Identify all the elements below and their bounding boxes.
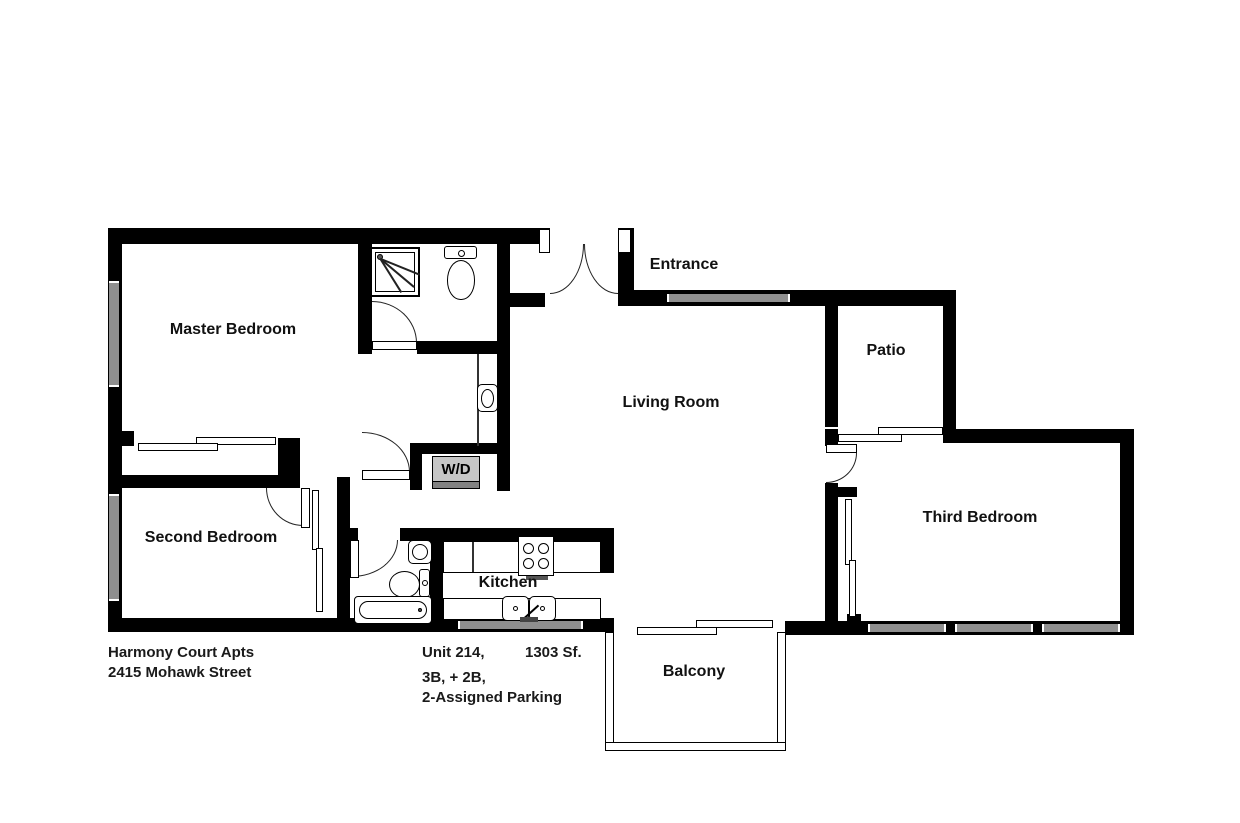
footer-building-name: Harmony Court Apts xyxy=(108,644,254,661)
toilet2-flush xyxy=(422,580,428,586)
bathroom1-door-swing xyxy=(372,301,417,343)
kitchen-sink-drain xyxy=(513,606,518,611)
wall-bedroom3-right xyxy=(1120,429,1134,635)
kitchen-sink-drain xyxy=(540,606,545,611)
master-hall-door-swing xyxy=(362,432,410,472)
stove-burner xyxy=(538,558,549,569)
window-bedroom3-1 xyxy=(868,624,946,632)
third-bedroom-closet-slider-back xyxy=(845,499,852,565)
wall-bathroom1-bottom-right-seg xyxy=(417,341,510,354)
wall-master-closet-right-post xyxy=(278,438,300,488)
entrance-door-right-jamb xyxy=(618,229,631,253)
wall-top-main xyxy=(108,228,550,244)
label-living-room: Living Room xyxy=(623,394,720,412)
wall-patio-left xyxy=(825,306,838,427)
second-bedroom-door-leaf xyxy=(301,488,310,528)
footer-area: 1303 Sf. xyxy=(525,644,582,661)
wall-kitchen-right-stub xyxy=(600,528,614,573)
toilet1-tank xyxy=(444,246,477,259)
washer-dryer-base xyxy=(432,482,480,489)
sink-hallway xyxy=(477,384,498,412)
stove xyxy=(518,536,554,576)
sink-bathroom2-basin xyxy=(412,544,428,560)
balcony-rail-left xyxy=(605,632,614,750)
bathtub-drain xyxy=(418,608,422,612)
floor-plan: W/D Master Bedroom Entrance Patio Living… xyxy=(0,0,1240,823)
window-living-room xyxy=(667,294,790,302)
wall-patio-right xyxy=(943,292,956,443)
master-closet-slider-front xyxy=(138,443,218,451)
wall-nook-vertical xyxy=(497,244,510,491)
wall-kitchen-top-main xyxy=(400,528,612,541)
wall-bedroom-divider xyxy=(108,475,300,488)
toilet2-tank xyxy=(419,569,430,597)
wall-wd-left xyxy=(410,443,422,490)
patio-slider-front xyxy=(838,434,902,442)
third-bedroom-closet-slider-front xyxy=(849,560,856,617)
label-kitchen: Kitchen xyxy=(479,574,538,592)
label-balcony: Balcony xyxy=(663,663,725,681)
kitchen-sink-base xyxy=(520,617,538,622)
washer-dryer-label: W/D xyxy=(441,461,470,478)
bathroom2-door-leaf xyxy=(350,540,359,578)
bathtub xyxy=(354,596,432,624)
second-bedroom-closet-slider-back xyxy=(312,490,319,550)
window-bedroom3-2 xyxy=(955,624,1033,632)
wall-wd-top xyxy=(410,443,497,454)
bathtub-basin xyxy=(359,601,427,619)
label-master-bedroom: Master Bedroom xyxy=(170,321,296,339)
toilet2-bowl xyxy=(389,571,420,598)
footer-address: 2415 Mohawk Street xyxy=(108,664,251,681)
toilet1-bowl xyxy=(447,260,475,300)
footer-unit: Unit 214, xyxy=(422,644,485,661)
label-patio: Patio xyxy=(866,342,905,360)
footer-parking: 2-Assigned Parking xyxy=(422,689,562,706)
washer-dryer: W/D xyxy=(432,456,480,482)
entrance-door-right-swing xyxy=(584,244,618,294)
third-bedroom-door-leaf xyxy=(826,444,857,453)
wall-bedroom3-left xyxy=(825,483,838,635)
wall-bathroom1-bottom-left-seg xyxy=(358,341,372,354)
second-bedroom-door-swing xyxy=(266,488,303,526)
entrance-door-left-jamb xyxy=(539,229,550,253)
footer-beds-baths: 3B, + 2B, xyxy=(422,669,486,686)
balcony-slider-front xyxy=(637,627,717,635)
master-hall-door-leaf xyxy=(362,470,410,480)
window-master-bedroom xyxy=(109,281,119,387)
entrance-door-left-swing xyxy=(550,244,584,294)
wall-bedroom2-east xyxy=(337,477,350,632)
wall-bedroom3-closet-top-stub xyxy=(835,487,857,497)
label-third-bedroom: Third Bedroom xyxy=(923,509,1038,527)
bathroom1-door-leaf xyxy=(372,341,417,350)
sink-bathroom2 xyxy=(408,540,432,564)
toilet1-flush xyxy=(458,250,465,257)
window-bedroom3-3 xyxy=(1042,624,1120,632)
stove-burner xyxy=(523,543,534,554)
label-second-bedroom: Second Bedroom xyxy=(145,529,277,547)
stove-burner xyxy=(523,558,534,569)
window-kitchen-passthrough xyxy=(458,621,583,629)
sink-hallway-basin xyxy=(481,389,494,408)
shower xyxy=(370,247,420,297)
wall-nook-horizontal xyxy=(497,293,545,307)
balcony-rail-bottom xyxy=(605,742,786,751)
wall-master-closet-left-stub xyxy=(108,431,134,446)
second-bedroom-closet-slider-front xyxy=(316,548,323,612)
stove-burner xyxy=(538,543,549,554)
wall-bedroom3-top xyxy=(943,429,1134,443)
label-entrance: Entrance xyxy=(650,256,718,274)
kitchen-counter-divider xyxy=(472,542,474,572)
balcony-rail-right xyxy=(777,632,786,750)
third-bedroom-door-swing xyxy=(826,453,857,483)
window-second-bedroom xyxy=(109,494,119,601)
